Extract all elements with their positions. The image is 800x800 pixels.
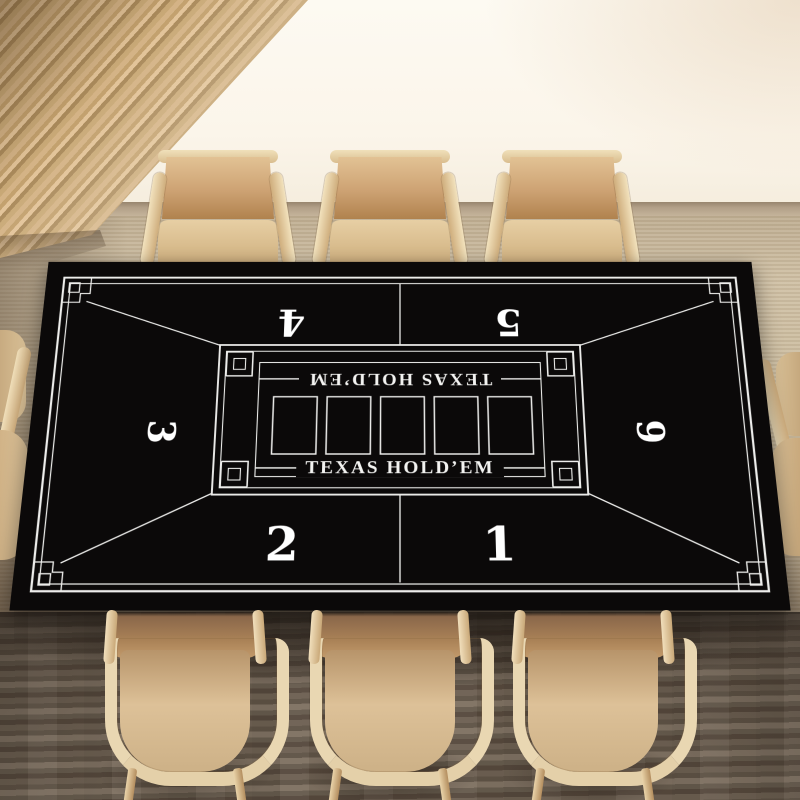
chair-bottom-left — [95, 612, 275, 800]
mat-corner-ornament — [62, 278, 92, 303]
chair-post-right — [660, 610, 675, 665]
card-slot-1 — [271, 397, 317, 454]
poker-mat: TEXAS HOLD’EM TEXAS HOLD’EM 1 2 3 4 5 6 — [9, 262, 790, 611]
seat-number-5: 5 — [494, 304, 523, 340]
chair-bottom-center — [300, 612, 480, 800]
card-slot-4 — [434, 397, 479, 454]
seat-number-3: 3 — [141, 420, 180, 444]
chair-post-right — [252, 610, 267, 665]
chair-top-center — [324, 150, 456, 266]
seat-number-4: 4 — [277, 304, 306, 340]
seat-number-6: 6 — [633, 420, 672, 444]
mat-title-bottom: TEXAS HOLD’EM — [296, 459, 504, 477]
chair-top-right — [496, 150, 628, 266]
mat-center-corner-ornament — [226, 352, 254, 376]
card-slot-3 — [380, 397, 424, 454]
card-slot-5 — [488, 397, 534, 454]
seat-number-1: 1 — [482, 521, 517, 568]
chair-post-right — [457, 610, 472, 665]
chair-bottom-right — [503, 612, 683, 800]
seat-number-2: 2 — [264, 521, 300, 568]
mat-title-top: TEXAS HOLD’EM — [299, 370, 502, 387]
room-scene: TEXAS HOLD’EM TEXAS HOLD’EM 1 2 3 4 5 6 — [0, 0, 800, 800]
chair-backrest — [334, 157, 446, 219]
chair-top-left — [152, 150, 284, 266]
chair-backrest — [162, 157, 274, 219]
card-slots — [271, 397, 533, 454]
card-slot-2 — [326, 397, 371, 454]
chair-backrest — [506, 157, 618, 219]
